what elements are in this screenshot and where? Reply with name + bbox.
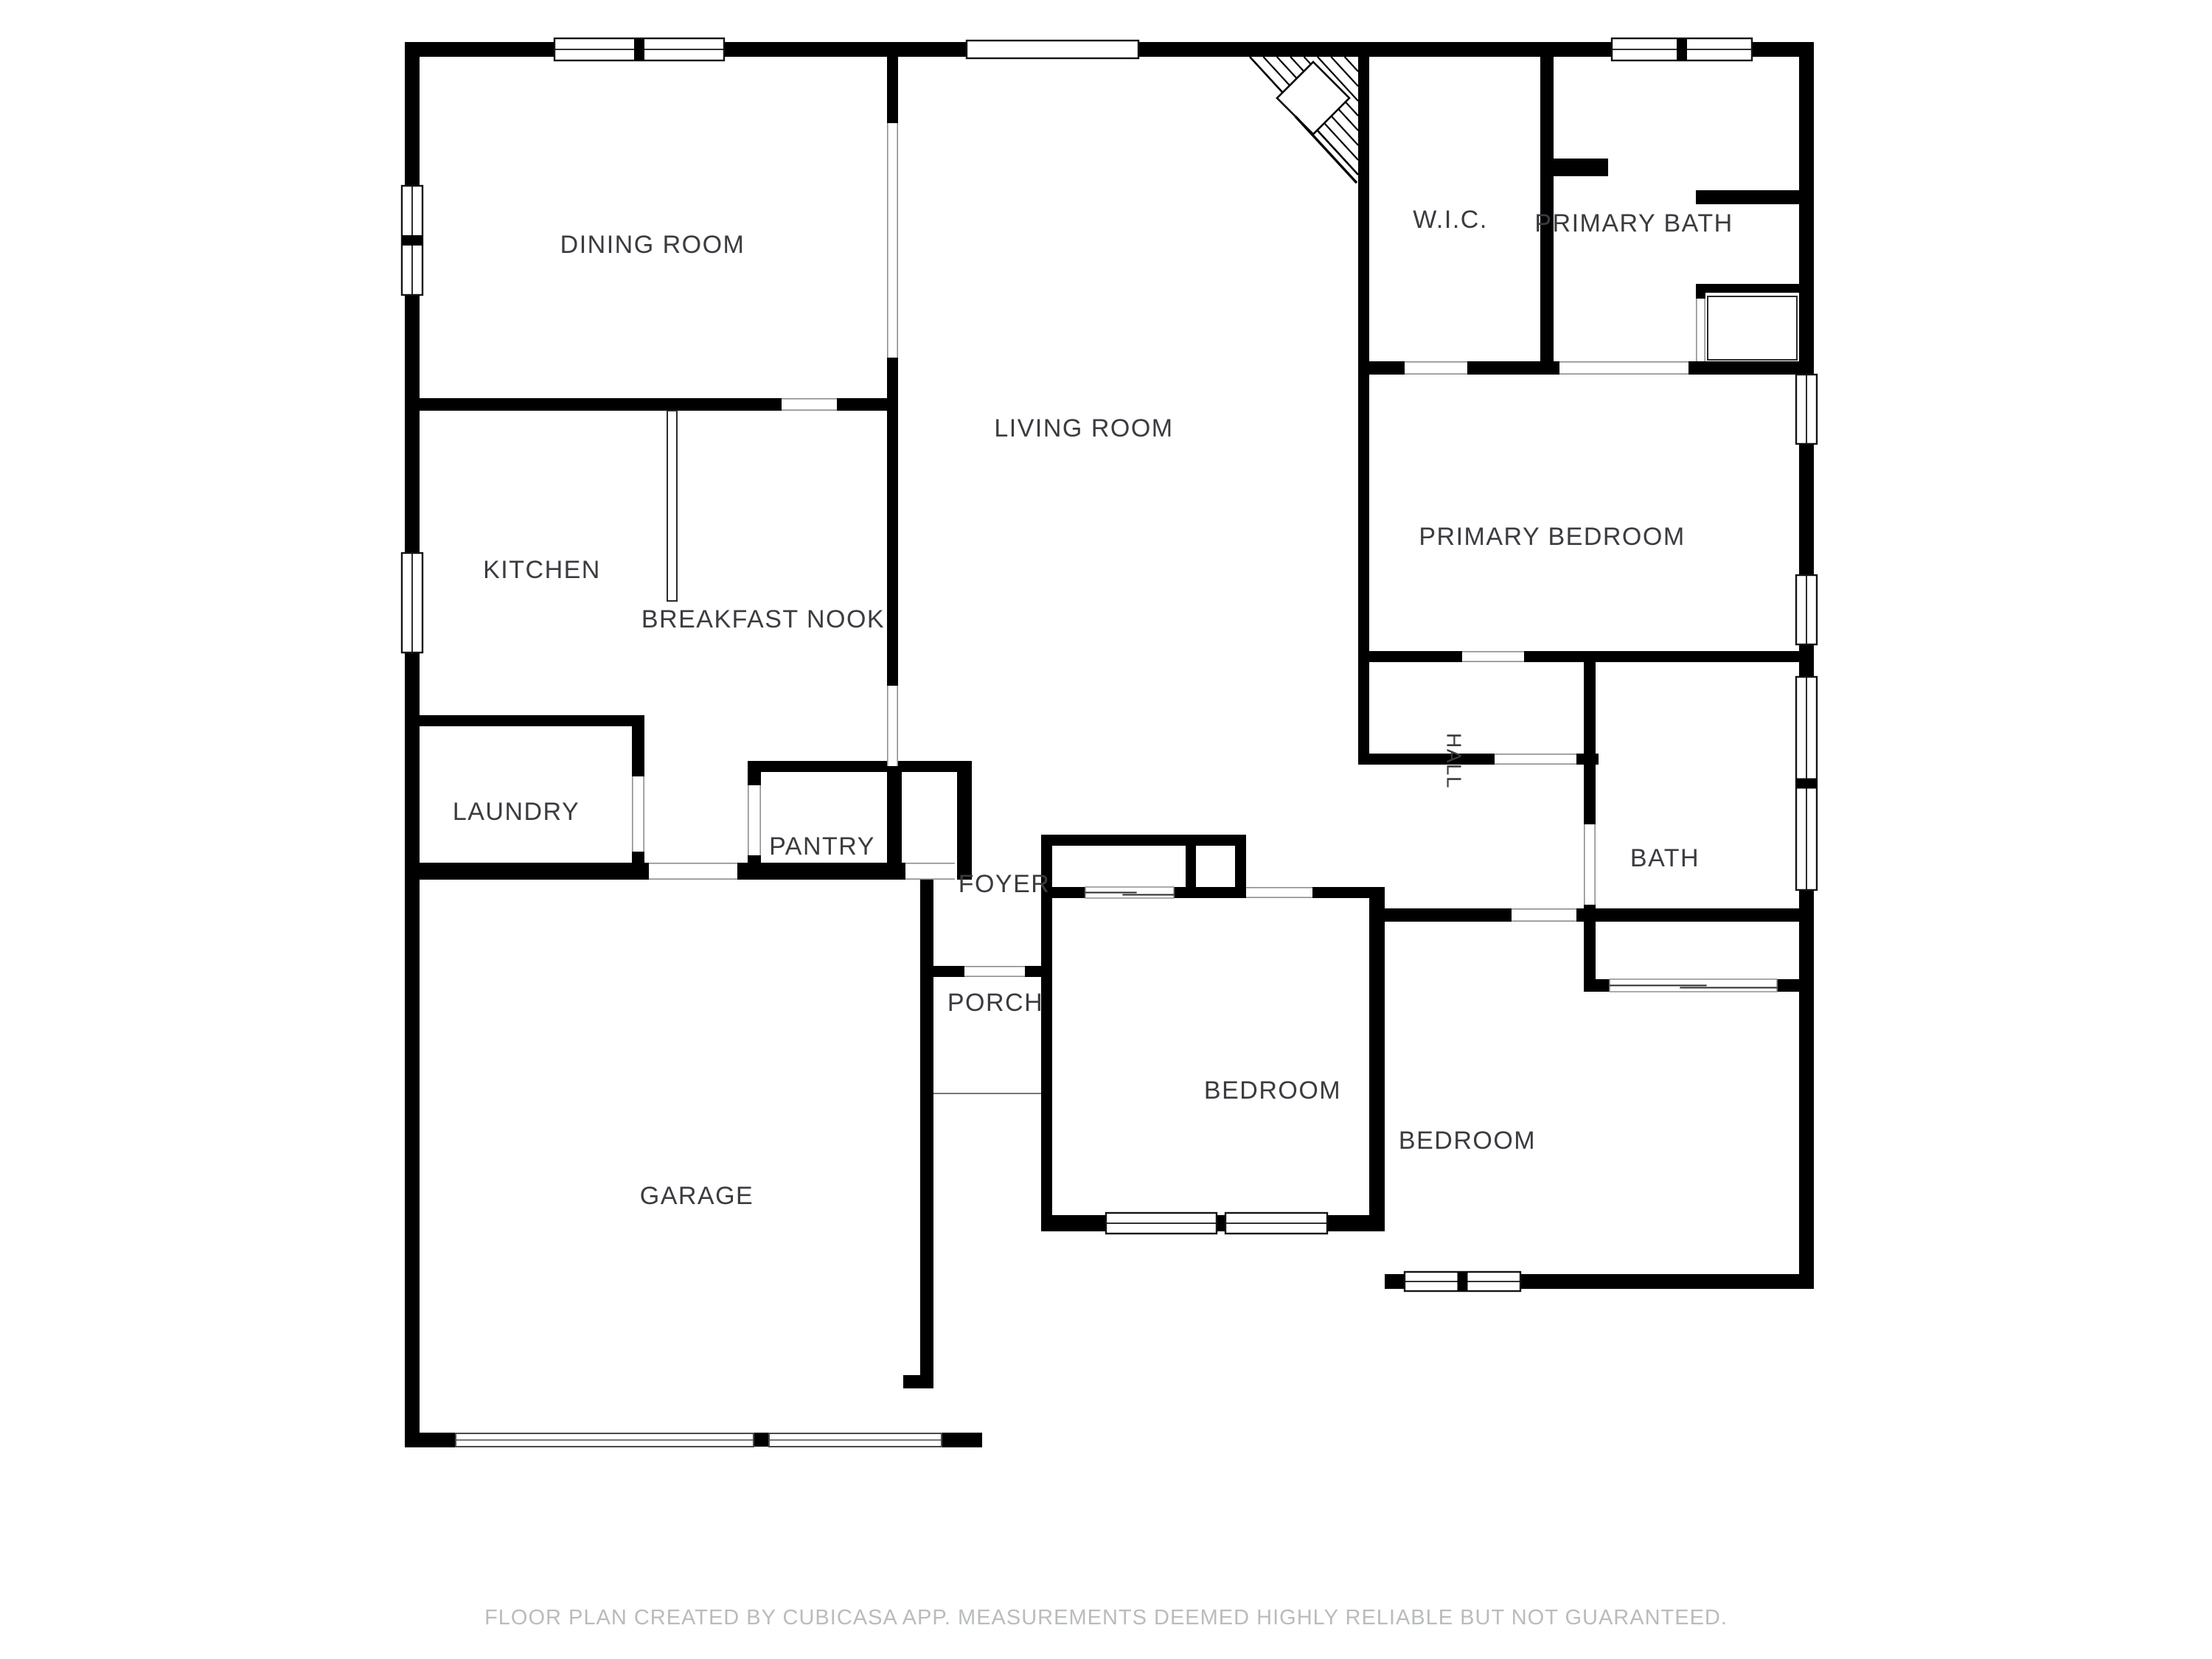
door-opening <box>964 966 1025 977</box>
wall <box>754 1433 769 1447</box>
wall <box>1052 835 1246 846</box>
wall <box>1358 57 1369 765</box>
door-opening <box>905 863 955 880</box>
wall <box>920 880 933 1388</box>
wall <box>903 1375 933 1388</box>
room-label-dining-room: DINING ROOM <box>560 231 745 259</box>
wall <box>1174 887 1246 898</box>
wall <box>1696 284 1705 299</box>
wall <box>1358 361 1405 375</box>
wall <box>957 772 972 880</box>
door-opening <box>887 123 898 358</box>
wall <box>1520 1274 1799 1289</box>
wall <box>887 411 898 686</box>
door-opening <box>649 863 737 880</box>
window-divider <box>1677 38 1687 60</box>
wall <box>1584 662 1596 824</box>
wall <box>1369 651 1462 662</box>
floor-plan-canvas: DINING ROOMKITCHENBREAKFAST NOOKLAUNDRYP… <box>0 0 2212 1659</box>
door-opening <box>1405 361 1467 375</box>
wall <box>1584 979 1610 992</box>
floor-plan: DINING ROOMKITCHENBREAKFAST NOOKLAUNDRYP… <box>0 0 2212 1659</box>
door-opening <box>1462 651 1524 662</box>
window-divider <box>1458 1272 1468 1291</box>
wall <box>1576 908 1799 922</box>
room-label-living-room: LIVING ROOM <box>994 414 1173 442</box>
door-opening <box>1696 299 1705 361</box>
wall <box>405 398 782 411</box>
room-label-kitchen: KITCHEN <box>483 556 601 584</box>
fixture-outline <box>1708 296 1797 360</box>
door-opening <box>748 785 761 855</box>
wall <box>1385 908 1512 922</box>
disclaimer-text: FLOOR PLAN CREATED BY CUBICASA APP. MEAS… <box>0 1606 2212 1630</box>
door-opening <box>887 686 898 766</box>
door-opening <box>1495 754 1576 765</box>
wall <box>1696 284 1799 293</box>
wall <box>1385 1274 1405 1289</box>
wall <box>1777 979 1799 992</box>
wall <box>1217 1215 1225 1231</box>
wall <box>1696 361 1705 375</box>
wall <box>737 863 933 880</box>
room-label-laundry: LAUNDRY <box>453 798 580 826</box>
plan-background <box>0 0 2212 1659</box>
wall <box>420 863 649 880</box>
wall <box>1312 887 1385 898</box>
window-divider <box>1796 779 1817 789</box>
room-label-foyer: FOYER <box>959 870 1051 898</box>
wall <box>420 715 632 726</box>
wall <box>1327 1215 1369 1231</box>
room-label-pantry: PANTRY <box>769 832 875 860</box>
wall <box>1554 159 1608 176</box>
door-opening <box>632 776 644 852</box>
door-opening <box>1584 824 1596 905</box>
wall <box>1186 846 1196 887</box>
room-label-bedroom: BEDROOM <box>1399 1127 1536 1155</box>
window <box>967 41 1138 58</box>
wall <box>748 855 761 880</box>
wall <box>1799 42 1814 1289</box>
room-label-porch: PORCH <box>947 989 1043 1017</box>
wall <box>887 358 898 411</box>
room-label-hall: HALL <box>1443 733 1466 789</box>
wall <box>748 761 902 772</box>
window-divider <box>402 235 422 246</box>
wall <box>902 761 972 772</box>
wall <box>887 766 902 880</box>
door-opening <box>1512 908 1576 922</box>
door-opening <box>1559 361 1688 375</box>
wall <box>1524 651 1799 662</box>
wall <box>942 1433 982 1447</box>
room-label-bath: BATH <box>1630 844 1700 872</box>
wall <box>920 966 964 977</box>
room-label-primary-bath: PRIMARY BATH <box>1534 209 1733 237</box>
wall <box>887 57 898 123</box>
window-divider <box>634 38 644 60</box>
wall <box>1052 887 1085 898</box>
room-label-garage: GARAGE <box>640 1182 754 1210</box>
wall <box>1041 1215 1106 1231</box>
room-label-w-i-c-: W.I.C. <box>1413 206 1488 234</box>
wall <box>405 1433 456 1447</box>
wall <box>1369 898 1385 1231</box>
fixture-outline <box>667 411 677 601</box>
door-opening <box>782 398 837 411</box>
wall <box>1696 190 1799 204</box>
door-opening <box>1246 887 1312 898</box>
room-label-primary-bedroom: PRIMARY BEDROOM <box>1419 523 1685 551</box>
room-label-breakfast-nook: BREAKFAST NOOK <box>641 605 885 633</box>
wall <box>748 772 761 785</box>
room-label-bedroom: BEDROOM <box>1204 1077 1341 1105</box>
wall <box>1358 754 1495 765</box>
wall <box>632 715 644 776</box>
